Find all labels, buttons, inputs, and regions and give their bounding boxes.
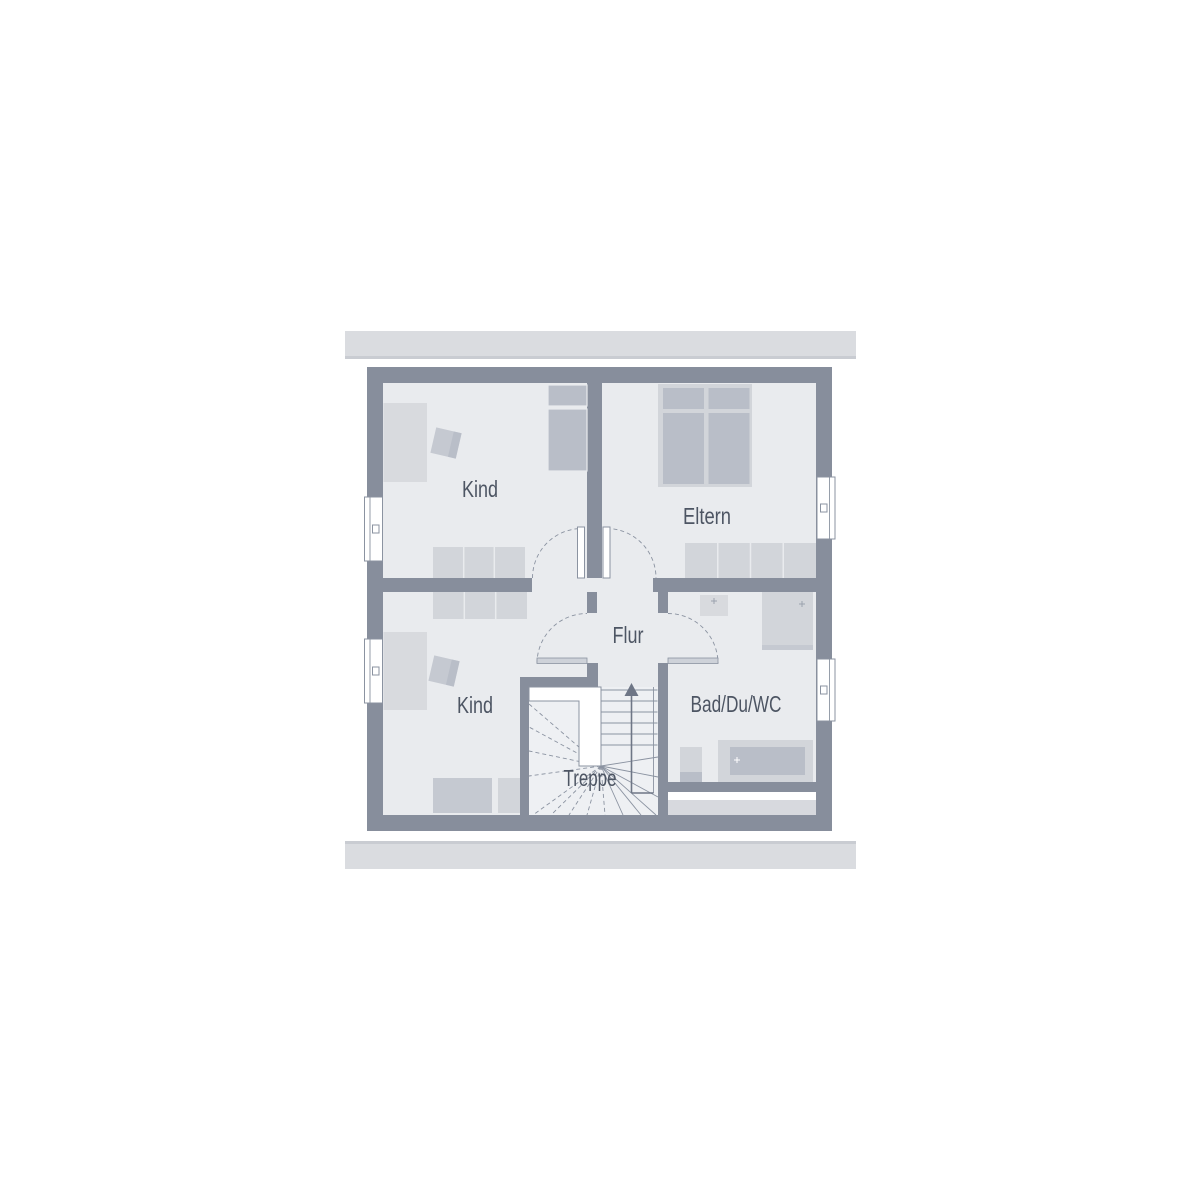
- window-right-1: [817, 477, 835, 539]
- roof-overhang-bottom-edge: [345, 841, 856, 844]
- bath-cabinet: [762, 592, 813, 650]
- bad-south-gap: [668, 792, 816, 800]
- window-handle-icon: [373, 667, 380, 675]
- mattress-left: [663, 413, 704, 484]
- floor-plan-page: Kind Eltern Kind Flur Treppe Bad/Du/WC: [0, 0, 1200, 1200]
- toilet-bowl: [680, 747, 702, 773]
- room-label-eltern: Eltern: [683, 503, 731, 529]
- roof-overhang-top: [345, 331, 856, 359]
- wall-stub-flur-left: [587, 592, 597, 613]
- door-leaf: [578, 527, 585, 578]
- window-left-2: [365, 639, 383, 703]
- roof-overhang-top-edge: [345, 356, 856, 359]
- roof-overhang-bottom: [345, 841, 856, 869]
- room-label-kind-bottom: Kind: [457, 692, 493, 718]
- wall-eltern-bad: [653, 578, 816, 592]
- window-right-2: [817, 659, 835, 721]
- cabinet: [548, 385, 587, 471]
- bad-south-zone: [668, 782, 816, 815]
- room-label-flur: Flur: [613, 622, 644, 648]
- door-leaf: [603, 527, 610, 578]
- window-handle-icon: [821, 686, 828, 694]
- door-leaf: [668, 658, 718, 664]
- wardrobe: [685, 543, 816, 578]
- bathtub: [718, 740, 813, 782]
- wardrobe: [433, 547, 525, 578]
- pillow-right: [709, 388, 750, 409]
- wardrobe-body: [433, 592, 527, 619]
- sideboard: [433, 778, 520, 813]
- wall-bad-south: [668, 782, 816, 792]
- wall-bad-stair: [658, 663, 668, 815]
- wall-stair-west: [520, 677, 529, 815]
- cabinet-body: [762, 592, 813, 650]
- window-handle-icon: [821, 504, 828, 512]
- cabinet-body: [548, 409, 587, 471]
- double-bed: [658, 384, 752, 487]
- bathtub-basin: [730, 747, 805, 775]
- bed-single: [384, 403, 428, 482]
- window-handle-icon: [373, 525, 380, 533]
- wall-stair-north: [520, 677, 598, 687]
- wardrobe-body: [433, 547, 525, 578]
- room-label-treppe: Treppe: [564, 765, 617, 791]
- cabinet-top: [548, 385, 587, 406]
- pillow-left: [663, 388, 704, 409]
- mattress-right: [709, 413, 750, 484]
- wardrobe: [433, 592, 527, 619]
- toilet-tank: [680, 772, 702, 782]
- staircase: [529, 683, 658, 815]
- room-label-kind-top: Kind: [462, 476, 498, 502]
- wall-kind-eltern: [587, 383, 602, 578]
- wall-kind-kind: [383, 578, 532, 592]
- window-left-1: [365, 497, 383, 561]
- sideboard-left: [433, 778, 492, 813]
- room-label-bad: Bad/Du/WC: [691, 691, 782, 717]
- floor-plan-drawing: Kind Eltern Kind Flur Treppe Bad/Du/WC: [0, 0, 1200, 1200]
- shower: [700, 595, 728, 616]
- bad-south-strip: [668, 800, 816, 815]
- door-leaf: [537, 658, 587, 664]
- bed-single: [384, 632, 428, 710]
- wall-stub-flur-right: [658, 592, 668, 613]
- sideboard-right: [498, 778, 520, 813]
- toilet: [680, 747, 702, 782]
- cabinet-edge: [762, 645, 813, 650]
